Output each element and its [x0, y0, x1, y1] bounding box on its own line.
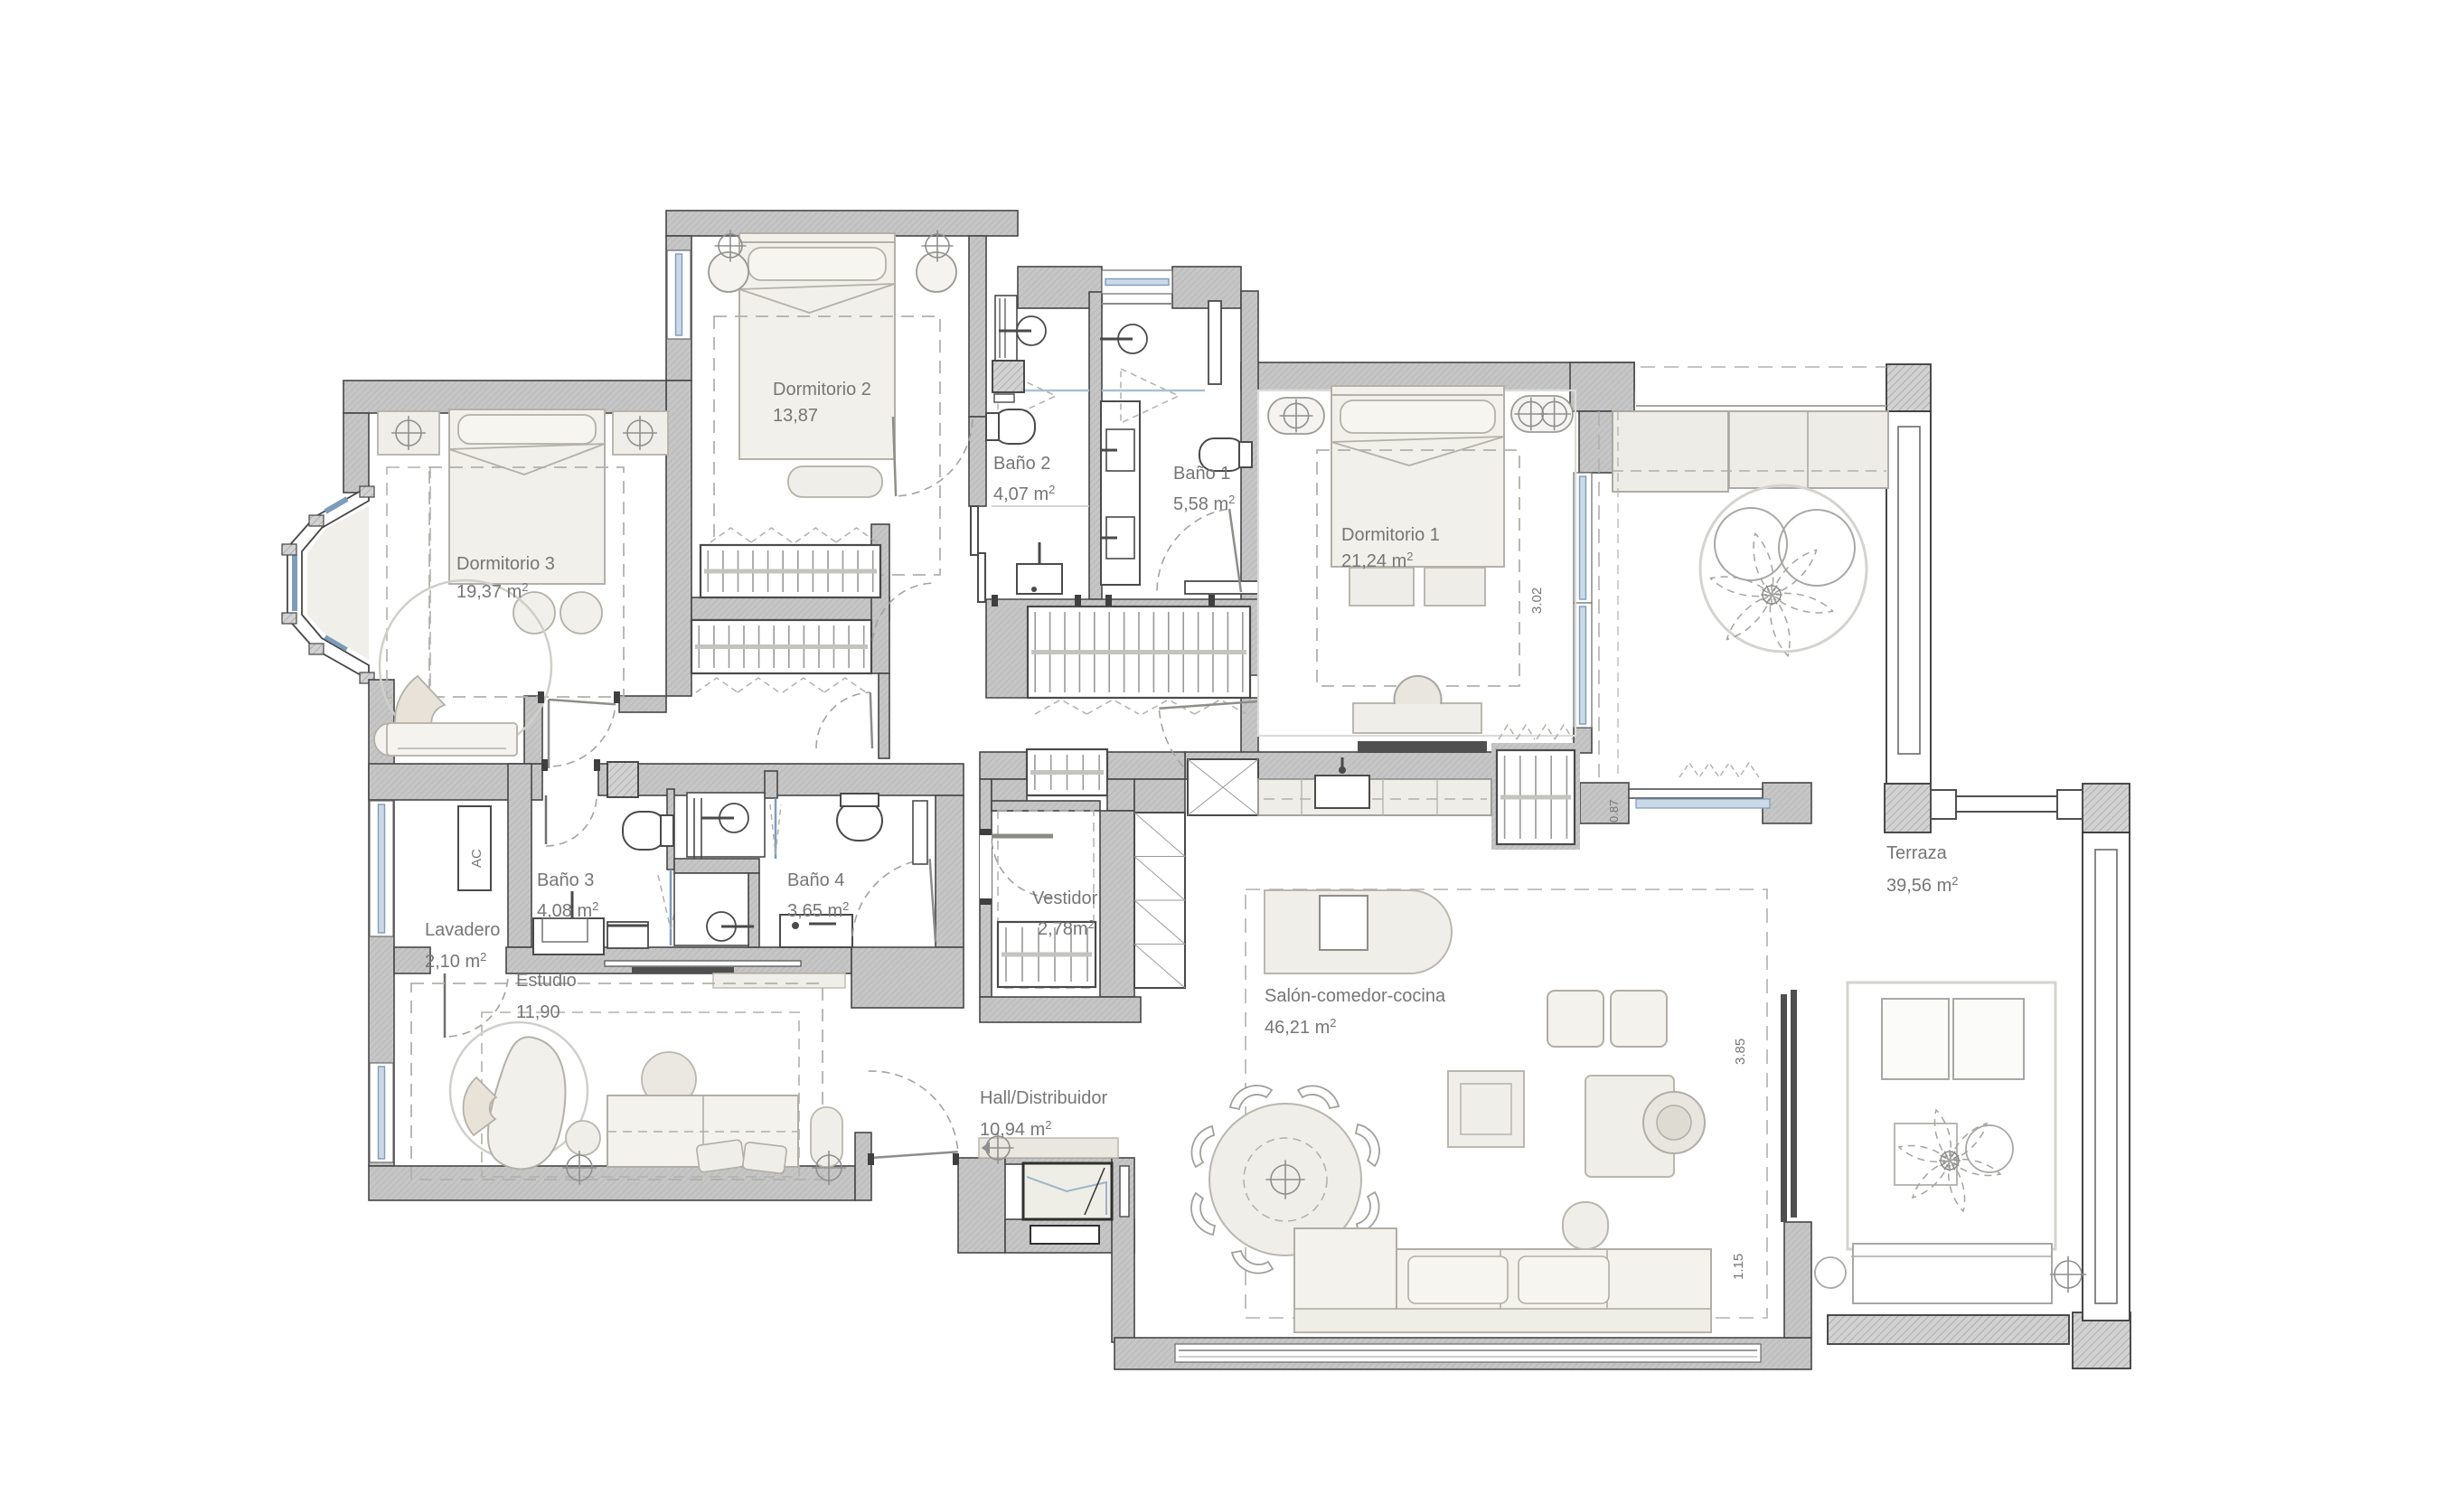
svg-text:5,58 m2: 5,58 m2 [1173, 493, 1235, 514]
svg-text:3.02: 3.02 [1529, 588, 1545, 614]
svg-text:13,87: 13,87 [773, 406, 818, 426]
svg-text:Estudio: Estudio [516, 971, 577, 991]
svg-text:Dormitorio 2: Dormitorio 2 [773, 380, 871, 400]
svg-text:Baño 1: Baño 1 [1173, 464, 1230, 484]
svg-text:21,24 m2: 21,24 m2 [1341, 550, 1414, 571]
svg-text:39,56 m2: 39,56 m2 [1886, 874, 1959, 896]
svg-text:2,10 m2: 2,10 m2 [425, 950, 486, 972]
svg-text:Dormitorio 1: Dormitorio 1 [1341, 525, 1440, 545]
svg-text:3.85: 3.85 [1733, 1039, 1748, 1065]
svg-text:0.87: 0.87 [1607, 800, 1621, 823]
svg-text:Lavadero: Lavadero [425, 920, 500, 940]
svg-text:11,90: 11,90 [516, 1002, 560, 1022]
svg-text:Baño 2: Baño 2 [993, 454, 1050, 474]
svg-text:4,07 m2: 4,07 m2 [993, 483, 1055, 504]
svg-text:AC: AC [469, 849, 484, 868]
svg-text:10,94 m2: 10,94 m2 [980, 1118, 1052, 1140]
svg-text:Salón-comedor-cocina: Salón-comedor-cocina [1265, 986, 1446, 1006]
svg-text:4,08 m2: 4,08 m2 [537, 899, 598, 921]
svg-text:2,78m2: 2,78m2 [1038, 917, 1095, 939]
svg-text:3,65 m2: 3,65 m2 [787, 899, 849, 921]
svg-text:1.15: 1.15 [1731, 1254, 1746, 1280]
svg-text:Hall/Distribuidor: Hall/Distribuidor [980, 1088, 1107, 1108]
svg-text:Vestidor: Vestidor [1032, 889, 1098, 908]
svg-text:46,21 m2: 46,21 m2 [1265, 1016, 1337, 1038]
svg-text:19,37 m2: 19,37 m2 [456, 580, 529, 602]
svg-text:Dormitorio 3: Dormitorio 3 [456, 554, 555, 574]
svg-text:Baño 4: Baño 4 [787, 870, 844, 890]
svg-text:Baño 3: Baño 3 [537, 870, 594, 890]
svg-text:Terraza: Terraza [1886, 843, 1948, 863]
